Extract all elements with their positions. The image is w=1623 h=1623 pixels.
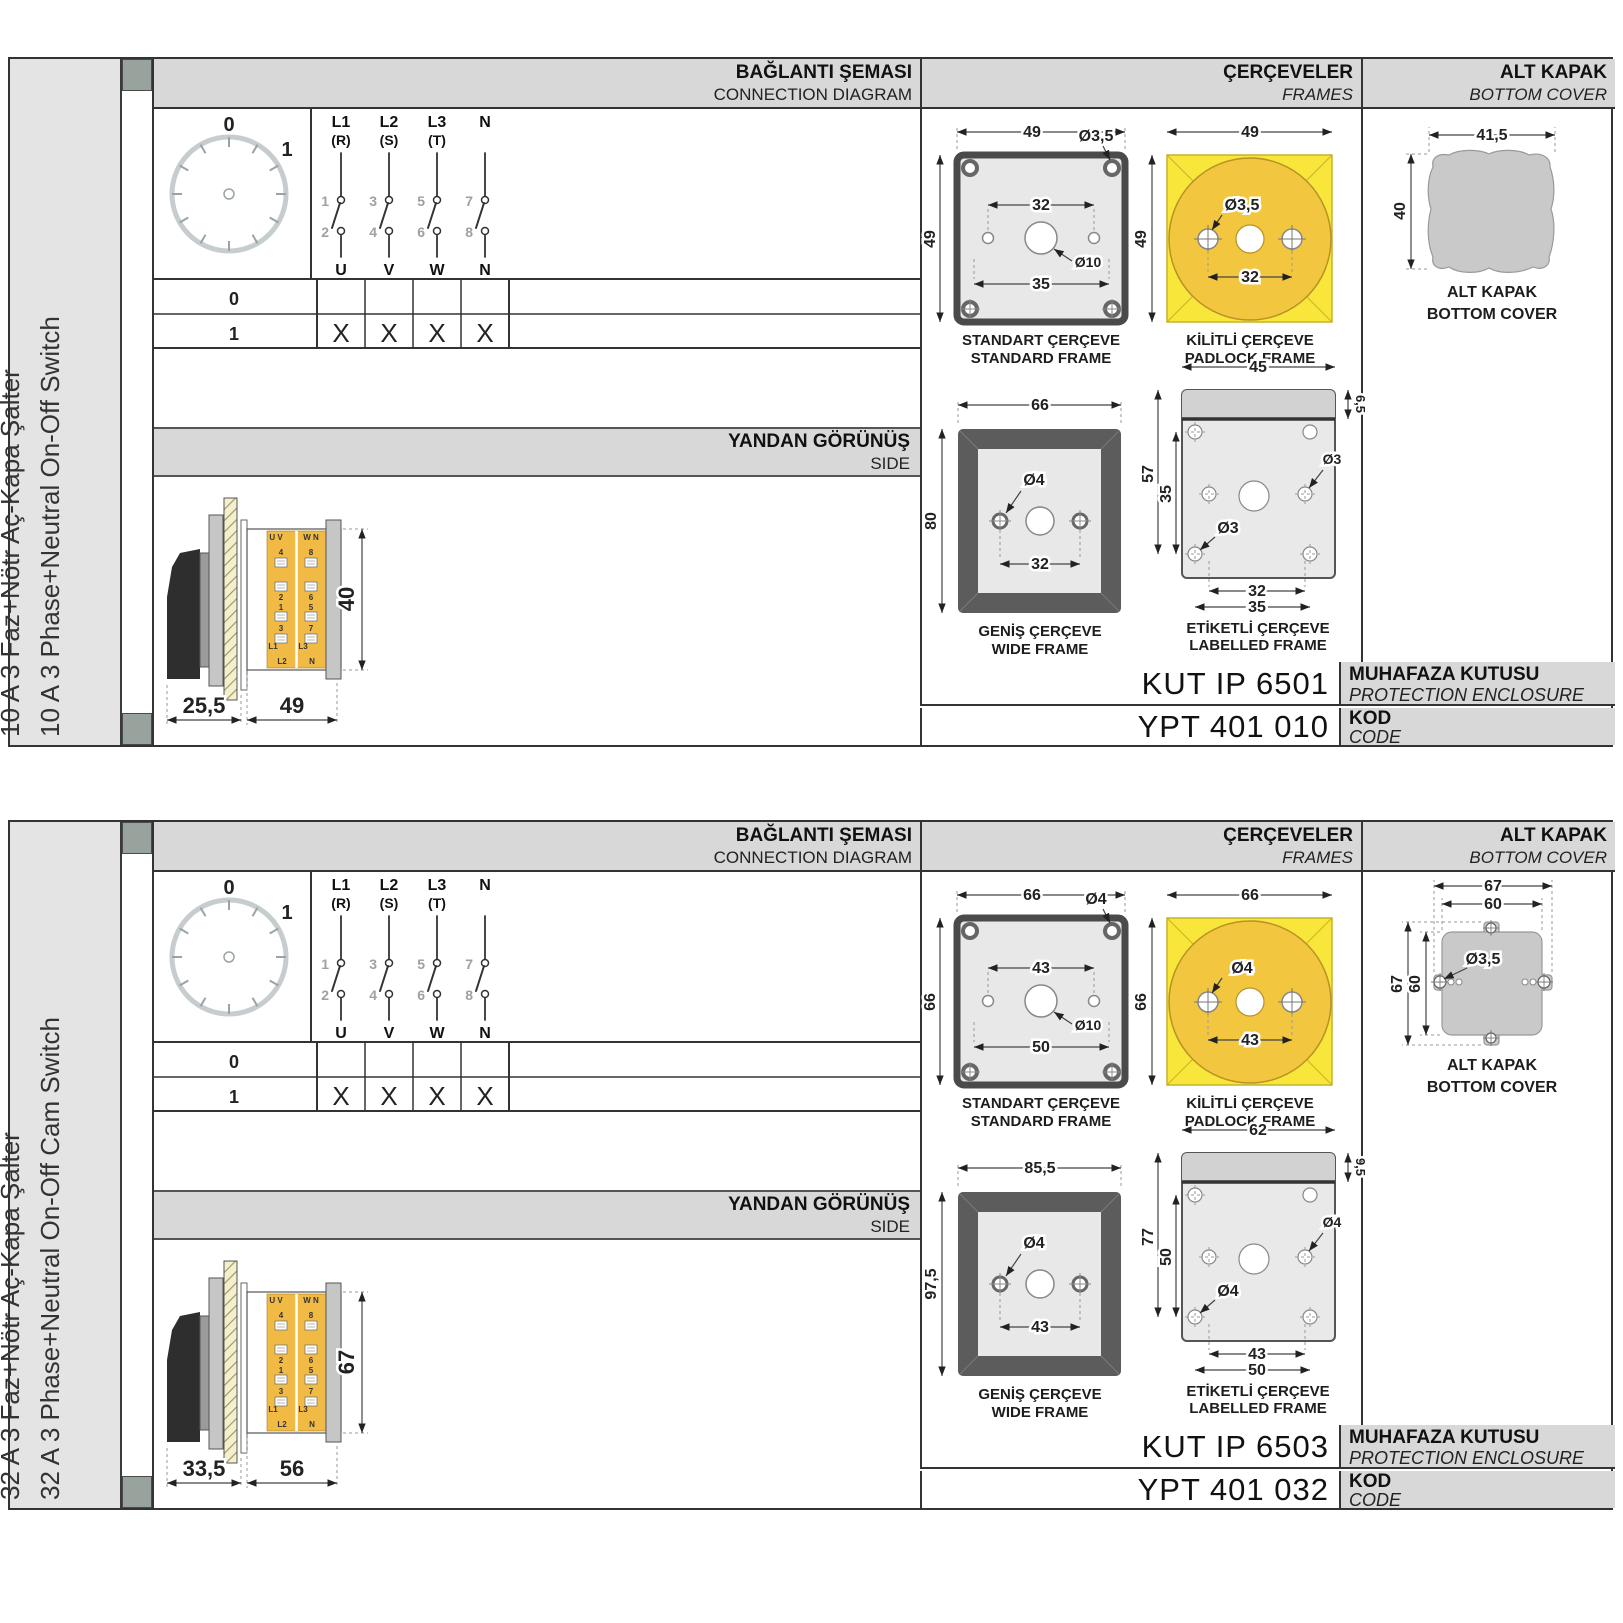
switching-table: 0 1 X X X X <box>154 279 920 348</box>
header-connection-diagram: BAĞLANTI ŞEMASI CONNECTION DIAGRAM <box>154 59 920 109</box>
standard-frame-drawing: 66 Ø4 66 43 Ø10 50 STANDART ÇERÇEVE STAN… <box>922 887 1125 1130</box>
enclosure-code-value: KUT IP 6501 <box>920 662 1339 706</box>
code-label-tr: KOD <box>1349 1473 1615 1491</box>
output-label: V <box>384 1025 395 1042</box>
dim-height: 40 <box>334 587 359 611</box>
table-mark: X <box>332 318 349 348</box>
code-label-en: CODE <box>1349 1491 1615 1509</box>
binder-tab-top <box>122 822 152 854</box>
wide-frame-caption-tr: GENİŞ ÇERÇEVE <box>978 1386 1101 1403</box>
enclosure-code-value: KUT IP 6503 <box>920 1425 1339 1469</box>
side-view-title: YANDAN GÖRÜNÜŞ <box>154 431 910 453</box>
phase-sublabel: (S) <box>380 132 399 148</box>
switch-contacts: L1 (R) 1 2 U L2 (S) 3 4 <box>321 114 491 279</box>
dim-width: 56 <box>280 1456 304 1481</box>
dim-base-span: 50 <box>1032 1039 1050 1056</box>
labelled-frame-caption-en: LABELLED FRAME <box>1189 637 1327 654</box>
cover-caption-en: BOTTOM COVER <box>1427 1079 1558 1096</box>
output-label: W <box>429 262 445 279</box>
side-view-header: YANDAN GÖRÜNÜŞ SIDE <box>154 427 920 477</box>
terminal-bottom-label: L2 <box>277 657 287 666</box>
contact-number-bottom: 6 <box>417 224 425 240</box>
table-mark: X <box>380 318 397 348</box>
dim-cover-w2: 60 <box>1484 896 1502 913</box>
product-section: 10 A 3 Faz+Nötr Aç-Kapa Şalter 10 A 3 Ph… <box>8 57 1613 747</box>
labelled-frame-drawing: 62 9,5 77 50 Ø4 Ø4 43 50 ETİKETLİ ÇERÇEV… <box>1140 1122 1368 1417</box>
standard-frame-drawing: 49 Ø3,5 49 32 Ø10 35 STANDART ÇERÇEVE ST… <box>922 124 1125 367</box>
side-view-subtitle: SIDE <box>154 1216 910 1238</box>
table-mark: X <box>428 318 445 348</box>
dim-hole-span: 32 <box>1032 197 1050 214</box>
wide-frame-caption-tr: GENİŞ ÇERÇEVE <box>978 623 1101 640</box>
dim-frame-width: 66 <box>1023 887 1041 904</box>
product-code-value: YPT 401 032 <box>920 1471 1339 1508</box>
table-mark: X <box>476 318 493 348</box>
wide-frame-drawing: 66 80 Ø4 32 GENİŞ ÇERÇEVE WIDE FRAME <box>923 397 1121 658</box>
table-mark: X <box>428 1081 445 1111</box>
terminal-top-label: U V <box>269 533 283 542</box>
contact-column: L3 (T) 5 6 W <box>417 877 446 1042</box>
contact-number-top: 5 <box>417 956 425 972</box>
product-section: 32 A 3 Faz+Nötr Aç-Kapa Şalter 32 A 3 Ph… <box>8 820 1613 1510</box>
dim-frame-height: 66 <box>922 993 939 1011</box>
contact-column: L3 (T) 5 6 W <box>417 114 446 279</box>
side-view-drawing: U V W N 4 2 1 3 8 6 5 7 L1 L2 L3 N 25,5 … <box>154 477 920 749</box>
dim-hole: Ø3,5 <box>1225 197 1260 214</box>
terminal-bottom-label: L1 <box>268 642 278 651</box>
dim-frame-height: 49 <box>922 230 939 248</box>
terminal-top-label: W N <box>303 1296 319 1305</box>
header-frames-subtitle: FRAMES <box>922 847 1353 869</box>
header-connection-title: BAĞLANTI ŞEMASI <box>154 825 912 847</box>
dim-width: 49 <box>280 693 304 718</box>
dim-hole: Ø4 <box>1023 472 1044 489</box>
dial-position-0: 0 <box>223 877 234 899</box>
phase-sublabel: (T) <box>428 895 446 911</box>
mounting-panel <box>224 498 237 700</box>
terminal-bottom-label: L3 <box>298 642 308 651</box>
padlock-frame-caption-tr: KİLİTLİ ÇERÇEVE <box>1186 332 1314 349</box>
table-mark: X <box>380 1081 397 1111</box>
labelled-frame-drawing: 45 6,5 57 35 Ø3 Ø3 32 35 ETİKETLİ ÇERÇEV… <box>1140 359 1368 654</box>
dim-height: 67 <box>334 1350 359 1374</box>
product-code-value: YPT 401 010 <box>920 708 1339 745</box>
side-view-header: YANDAN GÖRÜNÜŞ SIDE <box>154 1190 920 1240</box>
contact-number-top: 5 <box>417 193 425 209</box>
terminal-number: 4 <box>279 548 284 557</box>
enclosure-label-en: PROTECTION ENCLOSURE <box>1349 685 1615 706</box>
terminal-bottom-label: L2 <box>277 1420 287 1429</box>
dim-hole: Ø3,5 <box>1079 128 1114 145</box>
dim-cover-h2: 60 <box>1407 975 1424 993</box>
contact-number-bottom: 2 <box>321 224 329 240</box>
contact-number-bottom: 4 <box>369 224 377 240</box>
output-label: W <box>429 1025 445 1042</box>
header-connection-diagram: BAĞLANTI ŞEMASI CONNECTION DIAGRAM <box>154 822 920 872</box>
switch-handle <box>167 1312 200 1442</box>
front-plate <box>209 1278 223 1449</box>
output-label: V <box>384 262 395 279</box>
binder-column <box>122 822 152 1508</box>
wide-frame-drawing: 85,5 97,5 Ø4 43 GENİŞ ÇERÇEVE WIDE FRAME <box>923 1160 1121 1421</box>
terminal-number: 3 <box>279 624 284 633</box>
header-frames-title: ÇERÇEVELER <box>922 825 1353 847</box>
enclosure-label-tr: MUHAFAZA KUTUSU <box>1349 1427 1615 1448</box>
header-cover-subtitle: BOTTOM COVER <box>1363 84 1607 106</box>
terminal-number: 6 <box>309 593 314 602</box>
dial-position-1: 1 <box>281 139 292 161</box>
dim-cover-width: 41,5 <box>1476 127 1507 144</box>
header-frames: ÇERÇEVELER FRAMES <box>920 59 1361 109</box>
contact-number-top: 3 <box>369 193 377 209</box>
dim-frame-height: 49 <box>1133 230 1150 248</box>
switch-contacts: L1 (R) 1 2 U L2 (S) 3 4 <box>321 877 491 1042</box>
terminal-number: 6 <box>309 1356 314 1365</box>
dim-frame-height: 66 <box>1133 993 1150 1011</box>
phase-label: L1 <box>332 114 351 131</box>
header-cover-title: ALT KAPAK <box>1363 825 1607 847</box>
dim-inner-height: 50 <box>1158 1248 1175 1266</box>
terminal-bottom-label: N <box>309 657 315 666</box>
contact-number-bottom: 6 <box>417 987 425 1003</box>
output-label: N <box>479 262 491 279</box>
product-title-turkish: 32 A 3 Faz+Nötr Aç-Kapa Şalter <box>0 1132 26 1500</box>
table-mark: X <box>476 1081 493 1111</box>
terminal-number: 2 <box>279 1356 284 1365</box>
connection-diagram: 0 1 L1 (R) 1 2 U L2 (S) <box>154 872 920 1112</box>
dim-cover-h1: 67 <box>1389 975 1406 993</box>
cover-caption-tr: ALT KAPAK <box>1447 284 1538 301</box>
padlock-frame-drawing: 66 66 Ø4 43 KİLİTLİ ÇERÇEVE PADLOCK FRAM… <box>1133 887 1332 1130</box>
header-cover-subtitle: BOTTOM COVER <box>1363 847 1607 869</box>
terminal-bottom-label: L3 <box>298 1405 308 1414</box>
enclosure-label-tr: MUHAFAZA KUTUSU <box>1349 664 1615 685</box>
dim-hole-span: 43 <box>1031 1319 1049 1336</box>
dim-frame-width: 66 <box>1031 397 1049 414</box>
header-bottom-cover: ALT KAPAK BOTTOM COVER <box>1361 59 1615 109</box>
dim-center-hole: Ø10 <box>1075 254 1102 270</box>
terminal-bottom-label: N <box>309 1420 315 1429</box>
phase-label: L3 <box>428 114 447 131</box>
terminal-top-label: W N <box>303 533 319 542</box>
terminal-number: 5 <box>309 603 314 612</box>
dim-span-a: 32 <box>1248 583 1266 600</box>
dim-cover-height: 40 <box>1392 202 1409 220</box>
bottom-cover-drawing: 67 60 67 60 Ø3,5 ALT KAPAK BOTTOM COVER <box>1361 872 1615 1212</box>
enclosure-code-label: MUHAFAZA KUTUSU PROTECTION ENCLOSURE <box>1339 662 1615 706</box>
header-connection-subtitle: CONNECTION DIAGRAM <box>154 847 912 869</box>
phase-sublabel: (S) <box>380 895 399 911</box>
contact-number-top: 7 <box>465 956 473 972</box>
header-connection-title: BAĞLANTI ŞEMASI <box>154 62 912 84</box>
header-connection-subtitle: CONNECTION DIAGRAM <box>154 84 912 106</box>
output-label: U <box>335 262 347 279</box>
table-position-0: 0 <box>229 289 239 309</box>
contact-column: L1 (R) 1 2 U <box>321 877 351 1042</box>
dim-depth: 25,5 <box>183 693 226 718</box>
standard-frame-caption-en: STANDARD FRAME <box>971 350 1112 367</box>
contact-column: L1 (R) 1 2 U <box>321 114 351 279</box>
dim-cover-hole: Ø3,5 <box>1466 951 1501 968</box>
dim-frame-width: 49 <box>1023 124 1041 141</box>
binder-column <box>122 59 152 745</box>
terminal-number: 1 <box>279 603 284 612</box>
contact-number-bottom: 4 <box>369 987 377 1003</box>
cover-caption-tr: ALT KAPAK <box>1447 1057 1538 1074</box>
wide-frame-caption-en: WIDE FRAME <box>992 641 1089 658</box>
terminal-number: 8 <box>309 1311 314 1320</box>
product-title-english: 32 A 3 Phase+Neutral On-Off Cam Switch <box>35 1017 66 1500</box>
wide-frame-caption-en: WIDE FRAME <box>992 1404 1089 1421</box>
dim-frame-width: 85,5 <box>1024 1160 1055 1177</box>
standard-frame-caption-en: STANDARD FRAME <box>971 1113 1112 1130</box>
header-frames-subtitle: FRAMES <box>922 84 1353 106</box>
phase-label: L2 <box>380 877 399 894</box>
connection-diagram: 0 1 L1 (R) 1 2 U L2 (S) <box>154 109 920 349</box>
output-label: U <box>335 1025 347 1042</box>
bottom-cover-drawing: 41,5 40 ALT KAPAK BOTTOM COVER <box>1361 109 1615 449</box>
cover-tabbed: 67 60 67 60 Ø3,5 ALT KAPAK BOTTOM COVER <box>1389 878 1558 1096</box>
header-frames-title: ÇERÇEVELER <box>922 62 1353 84</box>
standard-frame-caption-tr: STANDART ÇERÇEVE <box>962 1095 1120 1112</box>
contact-column: N 7 8 N <box>465 877 491 1042</box>
cover-caption-en: BOTTOM COVER <box>1427 306 1558 323</box>
switching-table: 0 1 X X X X <box>154 1042 920 1111</box>
dim-depth: 33,5 <box>183 1456 226 1481</box>
terminal-number: 4 <box>279 1311 284 1320</box>
code-label-tr: KOD <box>1349 710 1615 728</box>
product-title-turkish: 10 A 3 Faz+Nötr Aç-Kapa Şalter <box>0 369 26 737</box>
phase-label: N <box>479 877 491 894</box>
spacer-plate <box>241 1283 247 1453</box>
phase-sublabel: (R) <box>331 895 350 911</box>
labelled-frame-caption-tr: ETİKETLİ ÇERÇEVE <box>1186 620 1329 637</box>
header-bottom-cover: ALT KAPAK BOTTOM COVER <box>1361 822 1615 872</box>
phase-label: L1 <box>332 877 351 894</box>
dim-frame-height: 77 <box>1140 1228 1157 1246</box>
contact-number-bottom: 2 <box>321 987 329 1003</box>
terminal-number: 2 <box>279 593 284 602</box>
dim-hole: Ø4 <box>1023 1235 1044 1252</box>
switch-handle <box>167 549 200 679</box>
dim-frame-width: 62 <box>1249 1122 1267 1139</box>
side-view-drawing: U V W N 4 2 1 3 8 6 5 7 L1 L2 L3 N 33,5 … <box>154 1240 920 1512</box>
dim-frame-width: 45 <box>1249 359 1267 376</box>
product-code-label: KOD CODE <box>1339 1471 1615 1508</box>
standard-frame-caption-tr: STANDART ÇERÇEVE <box>962 332 1120 349</box>
spacer-plate <box>241 520 247 690</box>
dial-position-0: 0 <box>223 114 234 136</box>
dim-center-hole: Ø10 <box>1075 1017 1102 1033</box>
catalog-page: 10 A 3 Faz+Nötr Aç-Kapa Şalter 10 A 3 Ph… <box>0 0 1623 1623</box>
contact-number-top: 1 <box>321 956 329 972</box>
dim-hole: Ø4 <box>1323 1214 1342 1230</box>
frames-drawings: 66 Ø4 66 43 Ø10 50 STANDART ÇERÇEVE STAN… <box>920 872 1361 1412</box>
contact-column: N 7 8 N <box>465 114 491 279</box>
contact-column: L2 (S) 3 4 V <box>369 877 398 1042</box>
phase-sublabel: (R) <box>331 132 350 148</box>
dim-frame-height: 80 <box>923 512 940 530</box>
dial-position-1: 1 <box>281 902 292 924</box>
dim-hole: Ø3 <box>1323 451 1342 467</box>
phase-label: N <box>479 114 491 131</box>
binder-tab-bottom <box>122 713 152 745</box>
code-label-en: CODE <box>1349 728 1615 746</box>
contact-number-top: 7 <box>465 193 473 209</box>
terminal-top-label: U V <box>269 1296 283 1305</box>
table-position-1: 1 <box>229 324 239 344</box>
header-frames: ÇERÇEVELER FRAMES <box>920 822 1361 872</box>
phase-sublabel: (T) <box>428 132 446 148</box>
table-position-0: 0 <box>229 1052 239 1072</box>
dim-hole: Ø4 <box>1085 891 1106 908</box>
header-cover-title: ALT KAPAK <box>1363 62 1607 84</box>
contact-number-top: 3 <box>369 956 377 972</box>
product-title-english: 10 A 3 Phase+Neutral On-Off Switch <box>35 316 66 737</box>
terminal-number: 7 <box>309 1387 314 1396</box>
enclosure-label-en: PROTECTION ENCLOSURE <box>1349 1448 1615 1469</box>
padlock-frame-drawing: 49 49 Ø3,5 32 KİLİTLİ ÇERÇEVE PADLOCK FR… <box>1133 124 1332 367</box>
switch-dial: 0 1 <box>172 114 293 251</box>
sidebar: 10 A 3 Faz+Nötr Aç-Kapa Şalter 10 A 3 Ph… <box>10 59 122 745</box>
contact-column: L2 (S) 3 4 V <box>369 114 398 279</box>
switch-dial: 0 1 <box>172 877 293 1014</box>
labelled-frame-caption-tr: ETİKETLİ ÇERÇEVE <box>1186 1383 1329 1400</box>
dim-inner-height: 35 <box>1158 485 1175 503</box>
dim-frame-width: 66 <box>1241 887 1259 904</box>
sidebar: 32 A 3 Faz+Nötr Aç-Kapa Şalter 32 A 3 Ph… <box>10 822 122 1508</box>
side-view-subtitle: SIDE <box>154 453 910 475</box>
dim-hole-span: 43 <box>1241 1032 1259 1049</box>
dim-cover-w1: 67 <box>1484 878 1502 895</box>
table-mark: X <box>332 1081 349 1111</box>
terminal-number: 3 <box>279 1387 284 1396</box>
phase-label: L3 <box>428 877 447 894</box>
product-code-label: KOD CODE <box>1339 708 1615 745</box>
padlock-frame-caption-tr: KİLİTLİ ÇERÇEVE <box>1186 1095 1314 1112</box>
dim-hole-span: 32 <box>1241 269 1259 286</box>
dim-frame-height: 97,5 <box>923 1268 940 1299</box>
cover-blob: 41,5 40 ALT KAPAK BOTTOM COVER <box>1392 127 1558 323</box>
frames-drawings: 49 Ø3,5 49 32 Ø10 35 STANDART ÇERÇEVE ST… <box>920 109 1361 649</box>
labelled-frame-caption-en: LABELLED FRAME <box>1189 1400 1327 1417</box>
front-plate <box>209 515 223 686</box>
terminal-number: 5 <box>309 1366 314 1375</box>
contact-number-top: 1 <box>321 193 329 209</box>
binder-tab-bottom <box>122 1476 152 1508</box>
dim-hole: Ø4 <box>1231 960 1252 977</box>
dim-base-span: 35 <box>1032 276 1050 293</box>
terminal-number: 1 <box>279 1366 284 1375</box>
dim-hole: Ø3 <box>1217 520 1238 537</box>
terminal-number: 8 <box>309 548 314 557</box>
dim-span-a: 43 <box>1248 1346 1266 1363</box>
terminal-number: 7 <box>309 624 314 633</box>
dim-span-b: 35 <box>1248 599 1266 616</box>
dim-span-b: 50 <box>1248 1362 1266 1379</box>
enclosure-code-label: MUHAFAZA KUTUSU PROTECTION ENCLOSURE <box>1339 1425 1615 1469</box>
dim-hole: Ø4 <box>1217 1283 1238 1300</box>
dim-hole-span: 43 <box>1032 960 1050 977</box>
mounting-panel <box>224 1261 237 1463</box>
dim-frame-width: 49 <box>1241 124 1259 141</box>
contact-number-bottom: 8 <box>465 224 473 240</box>
phase-label: L2 <box>380 114 399 131</box>
output-label: N <box>479 1025 491 1042</box>
contact-number-bottom: 8 <box>465 987 473 1003</box>
binder-tab-top <box>122 59 152 91</box>
side-view-title: YANDAN GÖRÜNÜŞ <box>154 1194 910 1216</box>
table-position-1: 1 <box>229 1087 239 1107</box>
terminal-bottom-label: L1 <box>268 1405 278 1414</box>
dim-hole-span: 32 <box>1031 556 1049 573</box>
dim-frame-height: 57 <box>1140 465 1157 483</box>
